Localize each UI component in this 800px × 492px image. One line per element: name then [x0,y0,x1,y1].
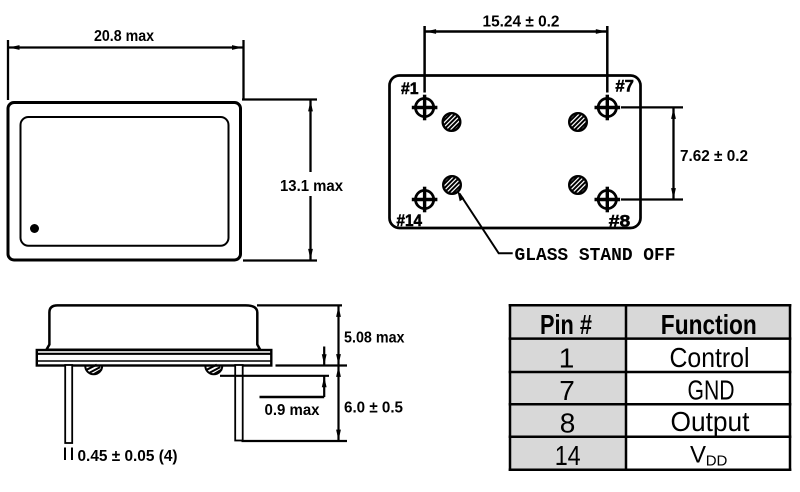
svg-text:15.24 ± 0.2: 15.24 ± 0.2 [483,13,560,30]
svg-text:Function: Function [661,309,757,340]
svg-text:#1: #1 [401,79,419,98]
svg-text:V: V [690,441,706,468]
svg-text:DD: DD [706,452,728,469]
svg-text:14: 14 [555,440,581,471]
svg-text:0.9 max: 0.9 max [265,402,320,419]
svg-text:Output: Output [671,406,750,437]
svg-text:#7: #7 [615,76,634,95]
svg-text:#14: #14 [397,211,423,230]
svg-text:6.0 ± 0.5: 6.0 ± 0.5 [344,399,403,416]
svg-text:Control: Control [670,342,750,373]
svg-text:5.08 max: 5.08 max [344,329,405,346]
svg-text:7: 7 [559,375,575,406]
svg-text:#8: #8 [609,211,631,230]
svg-text:GLASS STAND OFF: GLASS STAND OFF [515,246,676,266]
svg-text:Pin #: Pin # [540,309,592,340]
svg-text:7.62 ± 0.2: 7.62 ± 0.2 [680,148,748,165]
svg-text:GND: GND [688,375,735,406]
svg-text:20.8 max: 20.8 max [94,28,154,45]
svg-text:0.45 ± 0.05 (4): 0.45 ± 0.05 (4) [78,448,178,465]
svg-text:8: 8 [560,407,576,438]
svg-text:1: 1 [559,342,575,373]
svg-text:13.1 max: 13.1 max [280,178,343,195]
